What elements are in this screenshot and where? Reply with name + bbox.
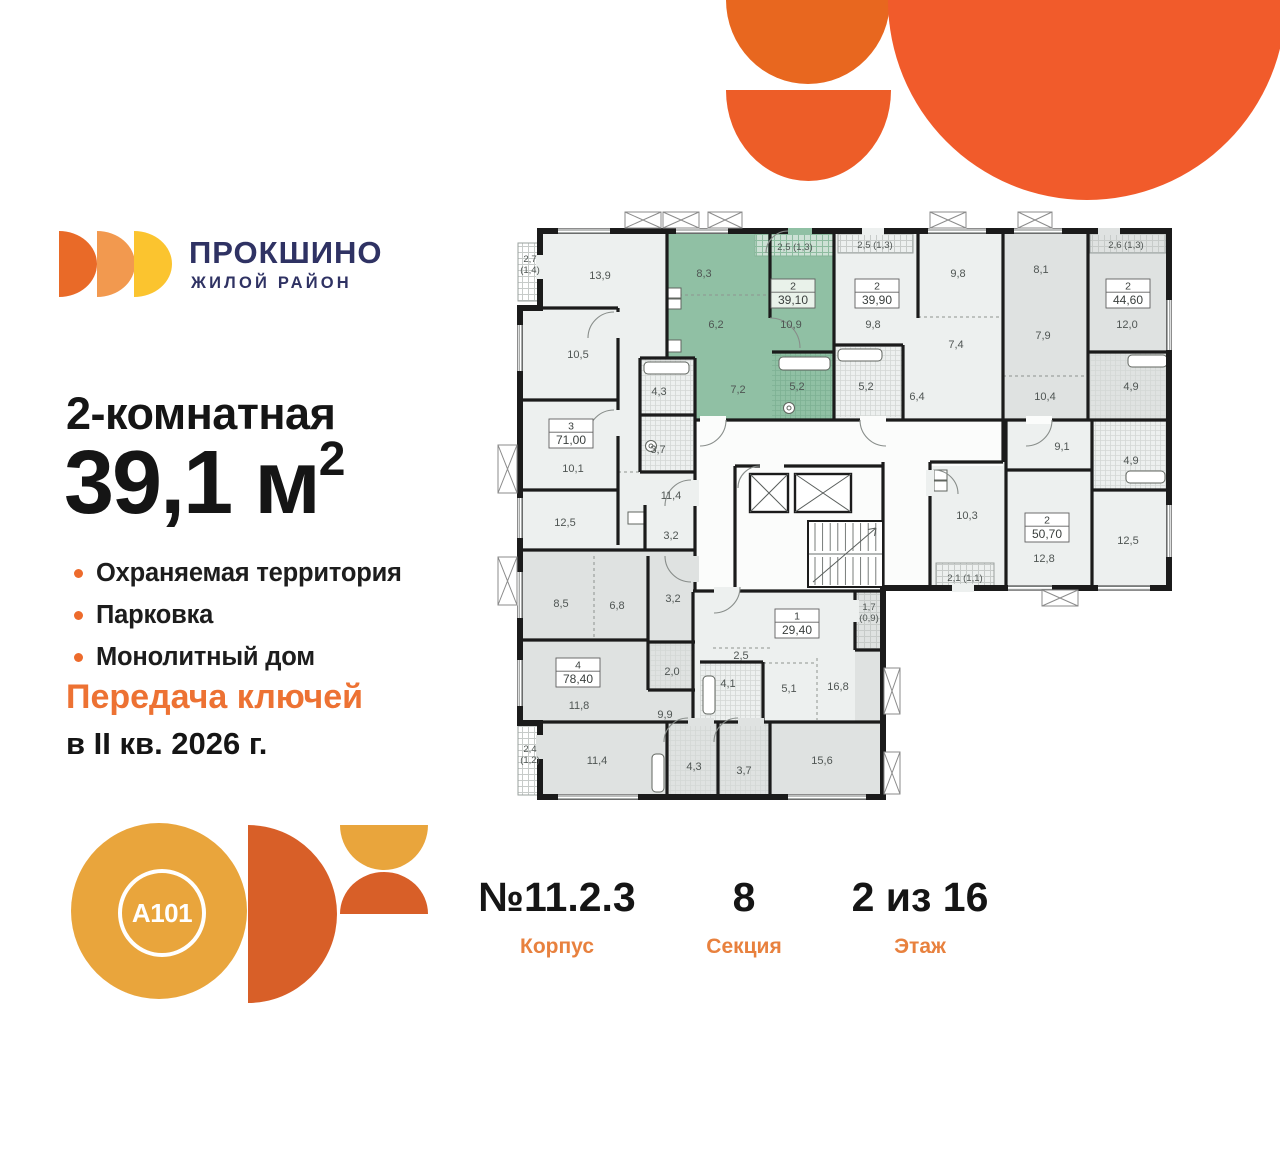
room-area-label: 7,9: [1035, 330, 1050, 342]
room-area-label: 10,3: [956, 510, 977, 522]
apartment-area: 29,40: [782, 623, 812, 637]
room-area-label: 10,4: [1034, 391, 1055, 403]
apartment-label-box: 250,70: [1025, 513, 1069, 542]
room-area-label: 6,8: [609, 600, 624, 612]
room-area-label: 5,2: [858, 381, 873, 393]
floor-plan: 13,910,510,112,511,44,33,73,22,7(1,4)8,3…: [0, 0, 1280, 1160]
room-area-label: 2,5 (1,3): [857, 240, 892, 251]
room-area-label: 3,7: [650, 444, 665, 456]
room-area-label: 4,3: [651, 386, 666, 398]
room-area-label: 4,9: [1123, 455, 1138, 467]
room-area-label: 11,4: [587, 755, 608, 767]
apartment-rooms-count: 3: [568, 421, 574, 433]
room-area-label: 12,5: [554, 517, 575, 529]
room-area-label: 4,9: [1123, 381, 1138, 393]
room-area-label: 15,6: [811, 755, 832, 767]
room-area-label: 9,9: [657, 709, 672, 721]
room-area-label: 2,6 (1,3): [1108, 240, 1143, 251]
room-area-label: 12,5: [1117, 535, 1138, 547]
room-area-label: 6,4: [909, 391, 924, 403]
room-area-label: 7,4: [948, 339, 963, 351]
apartment-rooms-count: 2: [1044, 515, 1050, 527]
room-area-label: 9,8: [865, 319, 880, 331]
room-area-label: 10,5: [567, 349, 588, 361]
room-area-label: 3,2: [665, 593, 680, 605]
apartment-rooms-count: 1: [794, 611, 800, 623]
kitchen-unit: [934, 481, 947, 491]
kitchen-unit: [934, 470, 947, 480]
room-area-label: 2,0: [664, 666, 679, 678]
room-area-label: 10,9: [780, 319, 801, 331]
room-area-label: 8,3: [696, 268, 711, 280]
apartment-label-box: 239,90: [855, 279, 899, 308]
room-area-label: 8,5: [553, 598, 568, 610]
stove: [628, 512, 644, 524]
room-area-label: 4,3: [686, 761, 701, 773]
room-area-label: 3,2: [663, 530, 678, 542]
bathtub: [779, 357, 830, 370]
bathtub: [644, 362, 689, 374]
apartment-rooms-count: 2: [1125, 281, 1131, 293]
apartment-area: 71,00: [556, 433, 586, 447]
bathtub: [1126, 471, 1165, 483]
room-area-label: 11,4: [661, 490, 682, 502]
apartment-label-box: 129,40: [775, 609, 819, 638]
bathtub: [838, 349, 882, 361]
staircase: [808, 521, 883, 587]
apartment-label-box: 478,40: [556, 658, 600, 687]
room-area-label: 16,8: [827, 681, 848, 693]
room-area-label: 8,1: [1033, 264, 1048, 276]
room-area-label: 13,9: [589, 270, 610, 282]
room-area-label: 2,5 (1,3): [777, 242, 812, 253]
apartment-label-box: 371,00: [549, 419, 593, 448]
room-area-label: 10,1: [562, 463, 583, 475]
apartment-label-box: 244,60: [1106, 279, 1150, 308]
room-area-label: 9,1: [1054, 441, 1069, 453]
room-area-label: 5,2: [789, 381, 804, 393]
apartment-area: 78,40: [563, 672, 593, 686]
kitchen-unit: [668, 299, 681, 309]
room-area-label: 2,5: [733, 650, 748, 662]
room-area-label: 5,1: [781, 683, 796, 695]
room-area-label: 11,8: [569, 700, 590, 712]
apartment-area: 39,90: [862, 293, 892, 307]
apartment-area: 50,70: [1032, 527, 1062, 541]
bathtub: [703, 676, 715, 714]
apartment-rooms-count: 4: [575, 660, 581, 672]
room-area-label: 7,2: [730, 384, 745, 396]
room-area-label: 6,2: [708, 319, 723, 331]
apartment-rooms-count: 2: [874, 281, 880, 293]
apartment-label-box: 239,10: [771, 279, 815, 308]
room-area-label: 4,1: [720, 678, 735, 690]
bathtub: [652, 754, 664, 792]
apartment-area: 44,60: [1113, 293, 1143, 307]
bathtub: [1128, 355, 1167, 367]
room-area-label: 3,7: [736, 765, 751, 777]
elevator-shafts: [750, 474, 851, 512]
apartment-area: 39,10: [778, 293, 808, 307]
room-area-label: 12,0: [1116, 319, 1137, 331]
apartment-rooms-count: 2: [790, 281, 796, 293]
room-area-label: 9,8: [950, 268, 965, 280]
room-area-label: 12,8: [1033, 553, 1054, 565]
kitchen-unit: [668, 288, 681, 298]
listing-card: { "brand": { "name": "ПРОКШИНО", "taglin…: [0, 0, 1280, 1160]
room-area-label: 2,1 (1,1): [947, 573, 982, 584]
